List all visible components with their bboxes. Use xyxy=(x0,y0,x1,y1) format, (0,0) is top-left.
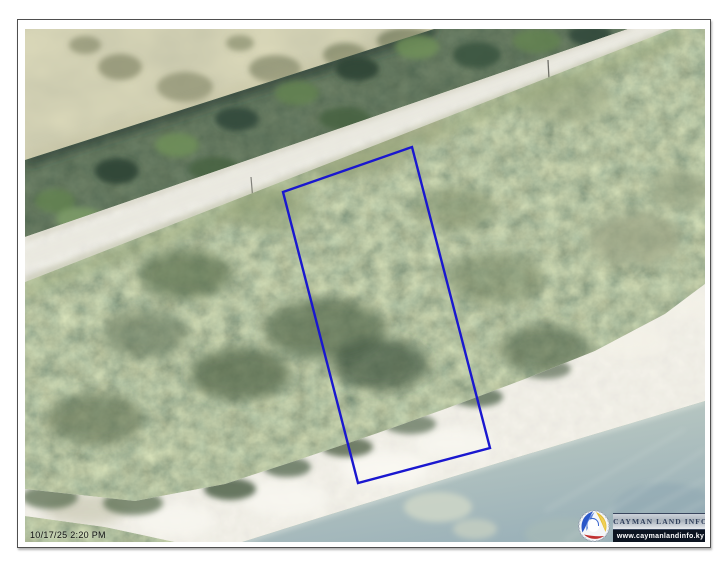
map-timestamp: 10/17/25 2:20 PM xyxy=(30,530,106,540)
aerial-scene xyxy=(25,29,705,542)
brand-url: www.caymanlandinfo.ky xyxy=(617,533,704,540)
cayman-land-info-logo: CAYMAN LAND INFO www.caymanlandinfo.ky xyxy=(577,508,705,542)
brand-name: CAYMAN LAND INFO xyxy=(613,517,705,526)
brand-name-band: CAYMAN LAND INFO xyxy=(613,513,705,530)
brand-url-band: www.caymanlandinfo.ky xyxy=(613,530,705,542)
cayman-land-info-swirl-icon xyxy=(577,509,611,542)
aerial-map-canvas[interactable]: 10/17/25 2:20 PM CAYMAN LAND INFO www.ca… xyxy=(25,29,705,542)
